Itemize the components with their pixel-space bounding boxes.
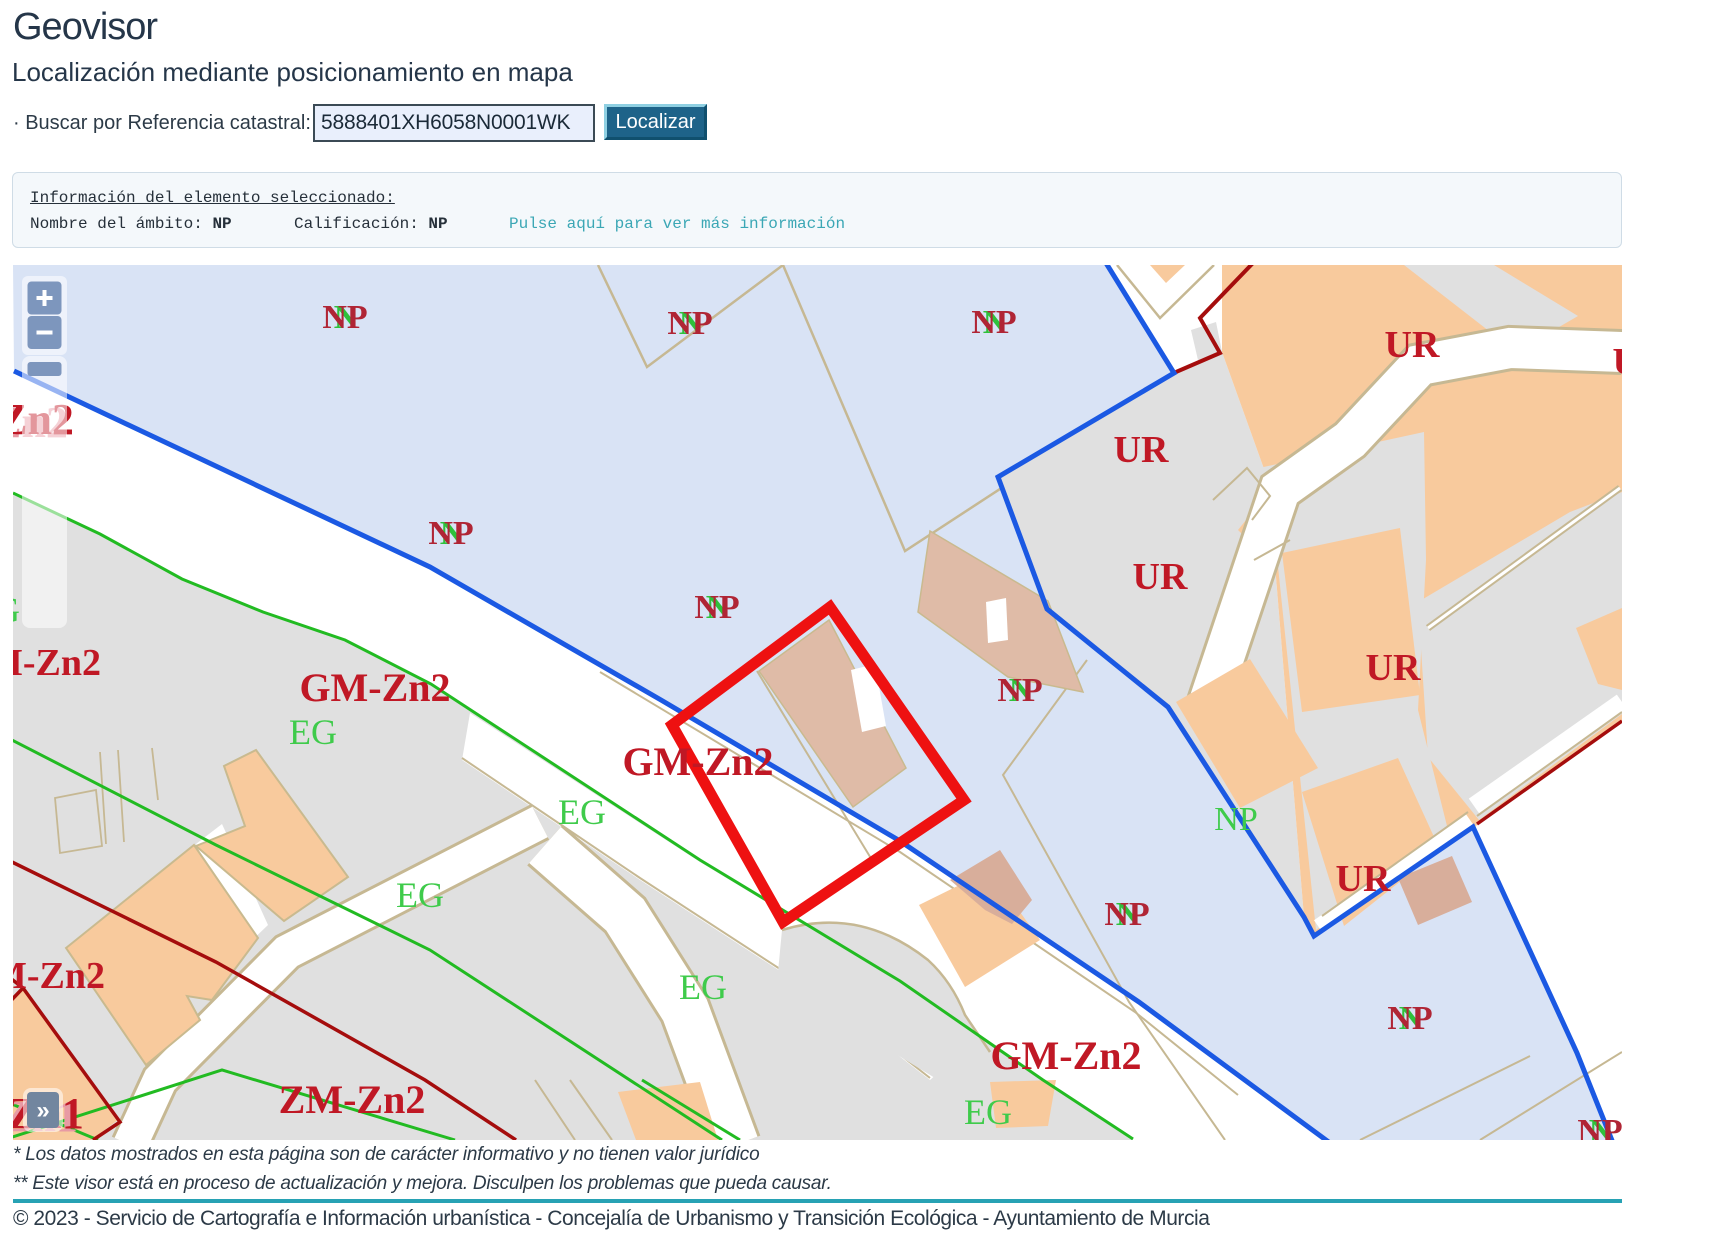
svg-text:EG: EG xyxy=(396,875,444,915)
svg-text:»: » xyxy=(36,1097,49,1124)
svg-text:UR: UR xyxy=(1385,324,1440,366)
svg-text:UR: UR xyxy=(1336,858,1391,900)
svg-text:EG: EG xyxy=(289,712,337,752)
svg-text:NP: NP xyxy=(322,299,367,336)
svg-text:EG: EG xyxy=(13,590,20,630)
svg-text:GM-Zn2: GM-Zn2 xyxy=(622,739,773,784)
svg-text:M-Zn2: M-Zn2 xyxy=(13,642,101,684)
svg-text:NP: NP xyxy=(694,589,739,626)
svg-text:UR: UR xyxy=(1613,341,1622,383)
svg-text:M-Zn2: M-Zn2 xyxy=(13,955,105,997)
svg-text:EG: EG xyxy=(679,967,727,1007)
svg-text:NP: NP xyxy=(428,515,473,552)
svg-text:NP: NP xyxy=(1577,1113,1622,1140)
svg-text:EG: EG xyxy=(558,792,606,832)
svg-text:NP: NP xyxy=(971,304,1016,341)
svg-text:NP: NP xyxy=(997,672,1042,709)
svg-text:ZM-Zn2: ZM-Zn2 xyxy=(279,1077,426,1122)
svg-text:UR: UR xyxy=(1114,429,1169,471)
svg-text:NP: NP xyxy=(1214,801,1257,838)
svg-text:UR: UR xyxy=(1133,556,1188,598)
svg-text:GM-Zn2: GM-Zn2 xyxy=(990,1033,1141,1078)
svg-text:EG: EG xyxy=(964,1092,1012,1132)
svg-text:GM-Zn2: GM-Zn2 xyxy=(299,665,450,710)
svg-text:NP: NP xyxy=(667,305,712,342)
svg-text:NP: NP xyxy=(1387,1000,1432,1037)
svg-text:NP: NP xyxy=(1104,896,1149,933)
svg-text:UR: UR xyxy=(1366,647,1421,689)
